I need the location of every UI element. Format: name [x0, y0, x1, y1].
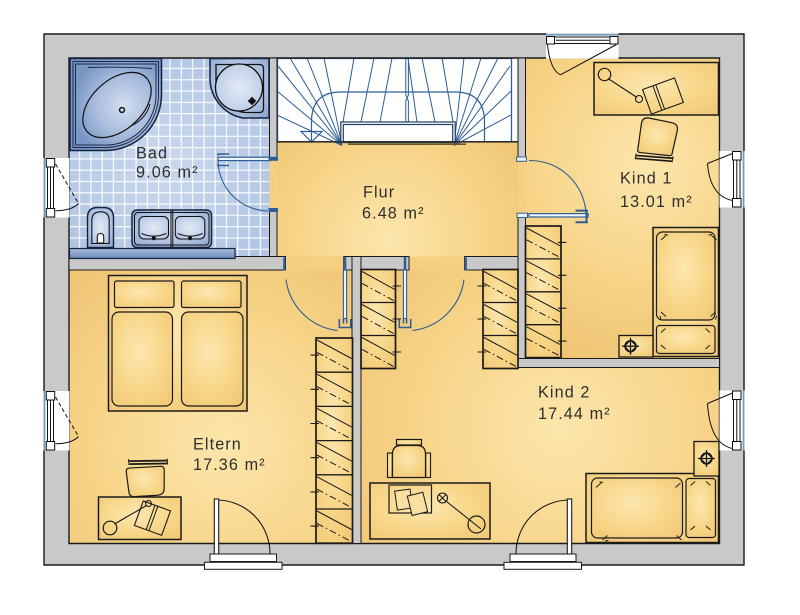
svg-text:Kind 1: Kind 1 [620, 170, 673, 188]
svg-text:13.01 m²: 13.01 m² [620, 193, 693, 211]
svg-text:17.36 m²: 17.36 m² [193, 456, 266, 474]
svg-text:Eltern: Eltern [193, 436, 242, 454]
svg-text:Kind 2: Kind 2 [538, 384, 591, 402]
svg-text:9.06 m²: 9.06 m² [136, 164, 199, 182]
svg-text:6.48 m²: 6.48 m² [362, 205, 425, 223]
svg-text:Flur: Flur [363, 184, 395, 202]
svg-text:Bad: Bad [136, 145, 168, 163]
svg-text:17.44 m²: 17.44 m² [538, 405, 611, 423]
